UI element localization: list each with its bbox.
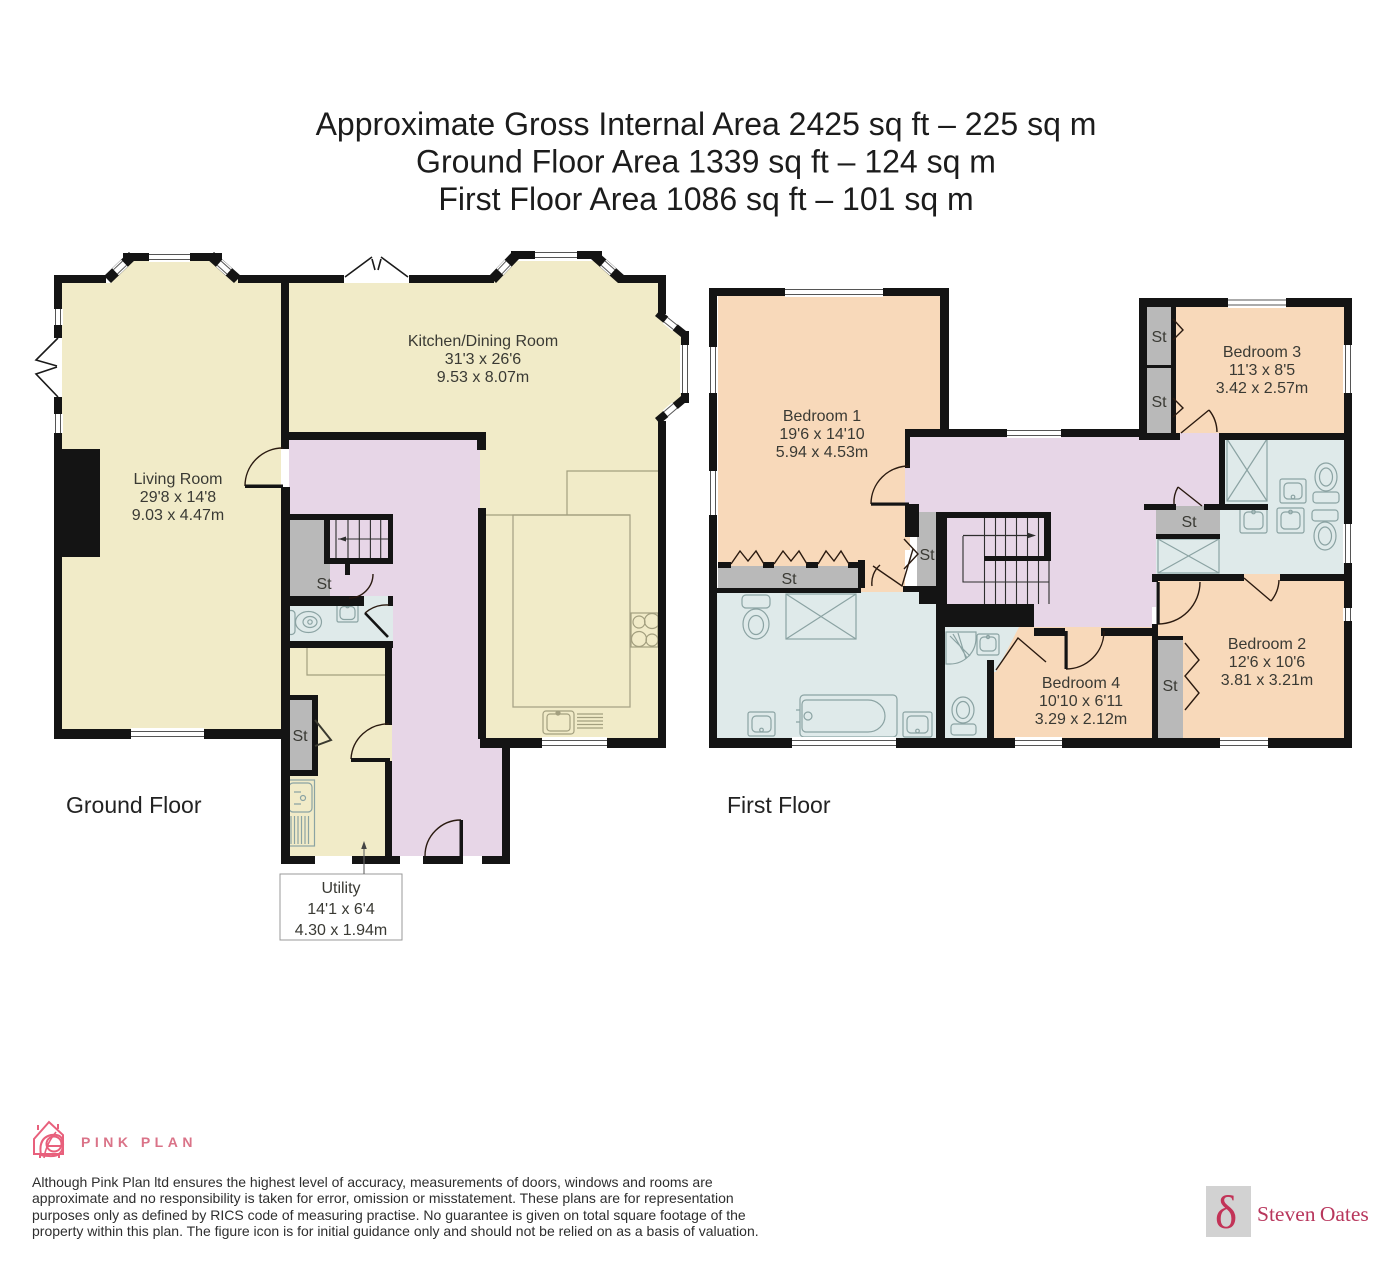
svg-text:St: St	[1151, 329, 1167, 346]
svg-text:3.42 x 2.57m: 3.42 x 2.57m	[1216, 380, 1309, 397]
svg-text:St: St	[1151, 394, 1167, 411]
svg-text:approximate and no responsibil: approximate and no responsibility is tak…	[32, 1190, 734, 1206]
svg-text:St: St	[292, 728, 308, 745]
svg-text:St: St	[1181, 514, 1197, 531]
svg-text:Ground Floor Area 1339 sq ft –: Ground Floor Area 1339 sq ft – 124 sq m	[416, 144, 996, 180]
svg-text:purposes only as defined by RI: purposes only as defined by RICS code of…	[32, 1207, 746, 1223]
svg-text:9.53 x 8.07m: 9.53 x 8.07m	[437, 369, 530, 386]
svg-text:Bedroom 3: Bedroom 3	[1223, 344, 1301, 361]
svg-text:11'3 x 8'5: 11'3 x 8'5	[1229, 362, 1295, 379]
svg-text:3.81 x 3.21m: 3.81 x 3.21m	[1221, 672, 1314, 689]
svg-text:3.29 x 2.12m: 3.29 x 2.12m	[1035, 711, 1128, 728]
svg-text:Living Room: Living Room	[134, 471, 223, 488]
svg-text:St: St	[919, 547, 935, 564]
svg-text:Steven Oates: Steven Oates	[1257, 1202, 1369, 1226]
svg-text:Utility: Utility	[321, 880, 360, 897]
svg-text:Bedroom 2: Bedroom 2	[1228, 636, 1306, 653]
svg-text:4.30 x 1.94m: 4.30 x 1.94m	[295, 922, 388, 939]
svg-text:First Floor Area 1086 sq ft –: First Floor Area 1086 sq ft – 101 sq m	[438, 181, 973, 217]
svg-text:St: St	[1162, 678, 1178, 695]
svg-text:9.03 x 4.47m: 9.03 x 4.47m	[132, 507, 225, 524]
svg-text:δ: δ	[1215, 1187, 1237, 1239]
svg-text:10'10 x 6'11: 10'10 x 6'11	[1039, 693, 1123, 710]
svg-text:Kitchen/Dining Room: Kitchen/Dining Room	[408, 333, 558, 350]
svg-text:property within this plan. The: property within this plan. The figure ic…	[32, 1223, 759, 1239]
svg-text:St: St	[781, 571, 797, 588]
svg-text:19'6 x 14'10: 19'6 x 14'10	[779, 426, 864, 443]
svg-text:31'3 x 26'6: 31'3 x 26'6	[445, 351, 521, 368]
svg-text:Bedroom 1: Bedroom 1	[783, 408, 861, 425]
svg-text:29'8 x 14'8: 29'8 x 14'8	[140, 489, 216, 506]
svg-text:Bedroom 4: Bedroom 4	[1042, 675, 1120, 692]
svg-text:St: St	[316, 576, 332, 593]
svg-text:Ground Floor: Ground Floor	[66, 792, 202, 818]
svg-text:PINK PLAN: PINK PLAN	[81, 1134, 197, 1150]
svg-text:First Floor: First Floor	[727, 792, 831, 818]
svg-text:Approximate Gross Internal Are: Approximate Gross Internal Area 2425 sq …	[316, 106, 1097, 142]
svg-text:Although Pink Plan ltd ensures: Although Pink Plan ltd ensures the highe…	[32, 1174, 713, 1190]
svg-text:14'1 x 6'4: 14'1 x 6'4	[307, 901, 375, 918]
svg-text:5.94 x 4.53m: 5.94 x 4.53m	[776, 444, 869, 461]
svg-text:12'6 x 10'6: 12'6 x 10'6	[1229, 654, 1305, 671]
